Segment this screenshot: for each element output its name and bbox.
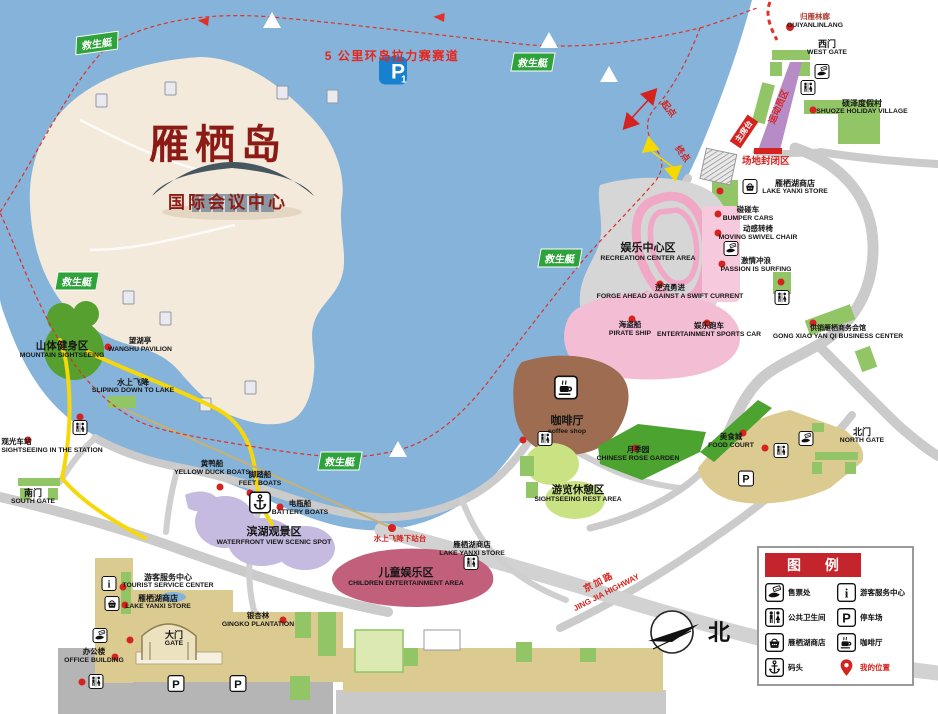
label-recreation-center: 娱乐中心区 RECREATION CENTER AREA <box>600 242 695 262</box>
label-guiyanlinlang: 归雁林廊 GUIYANLINLANG <box>787 13 843 29</box>
label-main-gate: 大门 GATE <box>165 630 183 648</box>
label-duck-boats: 黄鸭船 YELLOW DUCK BOATS <box>174 460 250 476</box>
label-office-building: 办公楼 OFFICE BUILDING <box>64 648 124 664</box>
courtyard <box>355 630 403 672</box>
legend-title: 图 例 <box>777 555 849 575</box>
building-block <box>424 630 460 650</box>
label-lake-store-mid: 雁栖湖商店 LAKE YANXI STORE <box>439 541 505 557</box>
label-swivel-chair: 动感转椅 MOVING SWIVEL CHAIR <box>719 225 798 241</box>
label-gingko: 银杏林 GINGKO PLANTATION <box>222 612 294 628</box>
label-rose-garden: 月季园 CHINESE ROSE GARDEN <box>597 446 680 462</box>
label-forge-ahead: 逆流勇进 FORGE AHEAD AGAINST A SWIFT CURRENT <box>597 284 744 300</box>
legend-box: 图 例 售票处 游客服务中心 公共卫生间 停车场 雁栖湖商店 咖啡厅 码头 我的… <box>757 546 914 686</box>
label-mountain-area: 山体健身区 MOUNTAIN SIGHTSEEING <box>20 340 104 360</box>
anchor-icon <box>249 492 271 519</box>
toilet-icon <box>774 443 789 463</box>
parking-icon <box>837 608 856 627</box>
bottom-road <box>336 690 666 714</box>
label-children-area: 儿童娱乐区 CHILDREN ENTERTAINMENT AREA <box>348 567 464 587</box>
coffee-icon <box>554 376 578 405</box>
label-lake-store-south: 雁栖湖商店 LAKE YANXI STORE <box>125 594 191 611</box>
yanxi-island-map: i P <box>0 0 938 714</box>
label-rest-area: 游览休憩区 SIGHTSEEING REST AREA <box>534 484 621 504</box>
legend-item: 我的位置 <box>837 655 912 680</box>
legend-item: 游客服务中心 <box>837 580 912 605</box>
legend-item: 咖啡厅 <box>837 630 912 655</box>
island-name: 雁栖岛 <box>149 112 287 170</box>
store-icon <box>105 596 120 616</box>
store-icon <box>765 633 784 652</box>
legend-item: 售票处 <box>765 580 837 605</box>
legend-item: 公共卫生间 <box>765 605 837 630</box>
label-lake-store-north: 雁栖湖商店 LAKE YANXI STORE <box>762 179 828 196</box>
legend-header: 图 例 <box>765 553 861 577</box>
lifeboat-badge: 救生艇 <box>510 53 555 72</box>
legend-item: 码头 <box>765 655 837 680</box>
label-north-gate: 北门 NORTH GATE <box>840 427 884 445</box>
toilet-icon <box>73 420 88 440</box>
location-icon <box>837 658 856 677</box>
label-pirate-ship: 海盗船 PIRATE SHIP <box>609 321 651 337</box>
parking-icon <box>168 675 185 697</box>
toilet-icon <box>89 674 104 694</box>
coffee-icon <box>837 633 856 652</box>
label-sports-car: 娱乐跑车 ENTERTAINMENT SPORTS CAR <box>657 322 761 338</box>
info-icon <box>837 583 856 602</box>
parking-icon <box>738 471 754 492</box>
ticket-icon <box>93 628 108 648</box>
lifeboat-badge: 救生艇 <box>54 272 99 291</box>
label-surfing: 激情冲浪 PASSION IS SURFING <box>721 257 792 273</box>
label-sightseeing-station: 观光车站 SIGHTSEEING IN THE STATION <box>1 438 102 454</box>
ticket-icon <box>815 64 830 84</box>
info-icon <box>102 576 117 596</box>
toilet-icon <box>801 80 816 100</box>
label-west-gate: 西门 WEST GATE <box>807 39 847 57</box>
grandstand <box>700 148 737 185</box>
label-battery-boats: 电瓶船 BATTERY BOATS <box>272 500 328 516</box>
legend-item: 停车场 <box>837 605 912 630</box>
label-business-center: 供销雁栖商务会馆 GONG XIAO YAN QI BUSINESS CENTE… <box>773 325 903 341</box>
label-coffee-shop: 咖啡厅 coffee shop <box>548 415 586 435</box>
anchor-icon <box>765 658 784 677</box>
label-wanghu-pavilion: 望湖亭 WANGHU PAVILION <box>108 337 172 353</box>
label-bumper-cars: 碰碰车 BUMPER CARS <box>723 206 774 222</box>
label-water-slide: 水上飞降 SLIPING DOWN TO LAKE <box>92 378 174 395</box>
ticket-icon <box>799 431 814 451</box>
compass-north-label: 北 <box>708 615 730 647</box>
race-track-label: 5 公里环岛拉力赛赛道 <box>325 47 460 64</box>
label-waterfront: 滨湖观景区 WATERFRONT VIEW SCENIC SPOT <box>217 526 332 546</box>
label-south-gate: 南门 SOUTH GATE <box>11 488 55 506</box>
toilet-icon <box>765 608 784 627</box>
legend-item: 雁栖湖商店 <box>765 630 837 655</box>
parking-icon <box>230 675 247 697</box>
closed-area-label: 场地封闭区 <box>742 153 790 167</box>
lifeboat-badge: 救生艇 <box>317 452 362 471</box>
label-food-court: 美食城 FOOD COURT <box>708 433 754 449</box>
legend-grid: 售票处 游客服务中心 公共卫生间 停车场 雁栖湖商店 咖啡厅 码头 我的位置 <box>765 580 912 680</box>
conference-center-name: 国际会议中心 <box>168 188 288 213</box>
label-tourist-center: 游客服务中心 TOURIST SERVICE CENTER <box>122 573 213 590</box>
label-slide-platform: 水上飞降下站台 <box>374 535 427 544</box>
lifeboat-badge: 救生艇 <box>537 249 582 268</box>
parking-1-sub: 1 <box>401 75 407 86</box>
toilet-icon <box>775 290 790 310</box>
label-shuoze-village: 硕泽度假村 SHUOZE HOLIDAY VILLAGE <box>816 99 907 116</box>
toilet-icon <box>464 555 479 575</box>
ticket-icon <box>765 583 784 602</box>
store-icon <box>743 179 758 199</box>
